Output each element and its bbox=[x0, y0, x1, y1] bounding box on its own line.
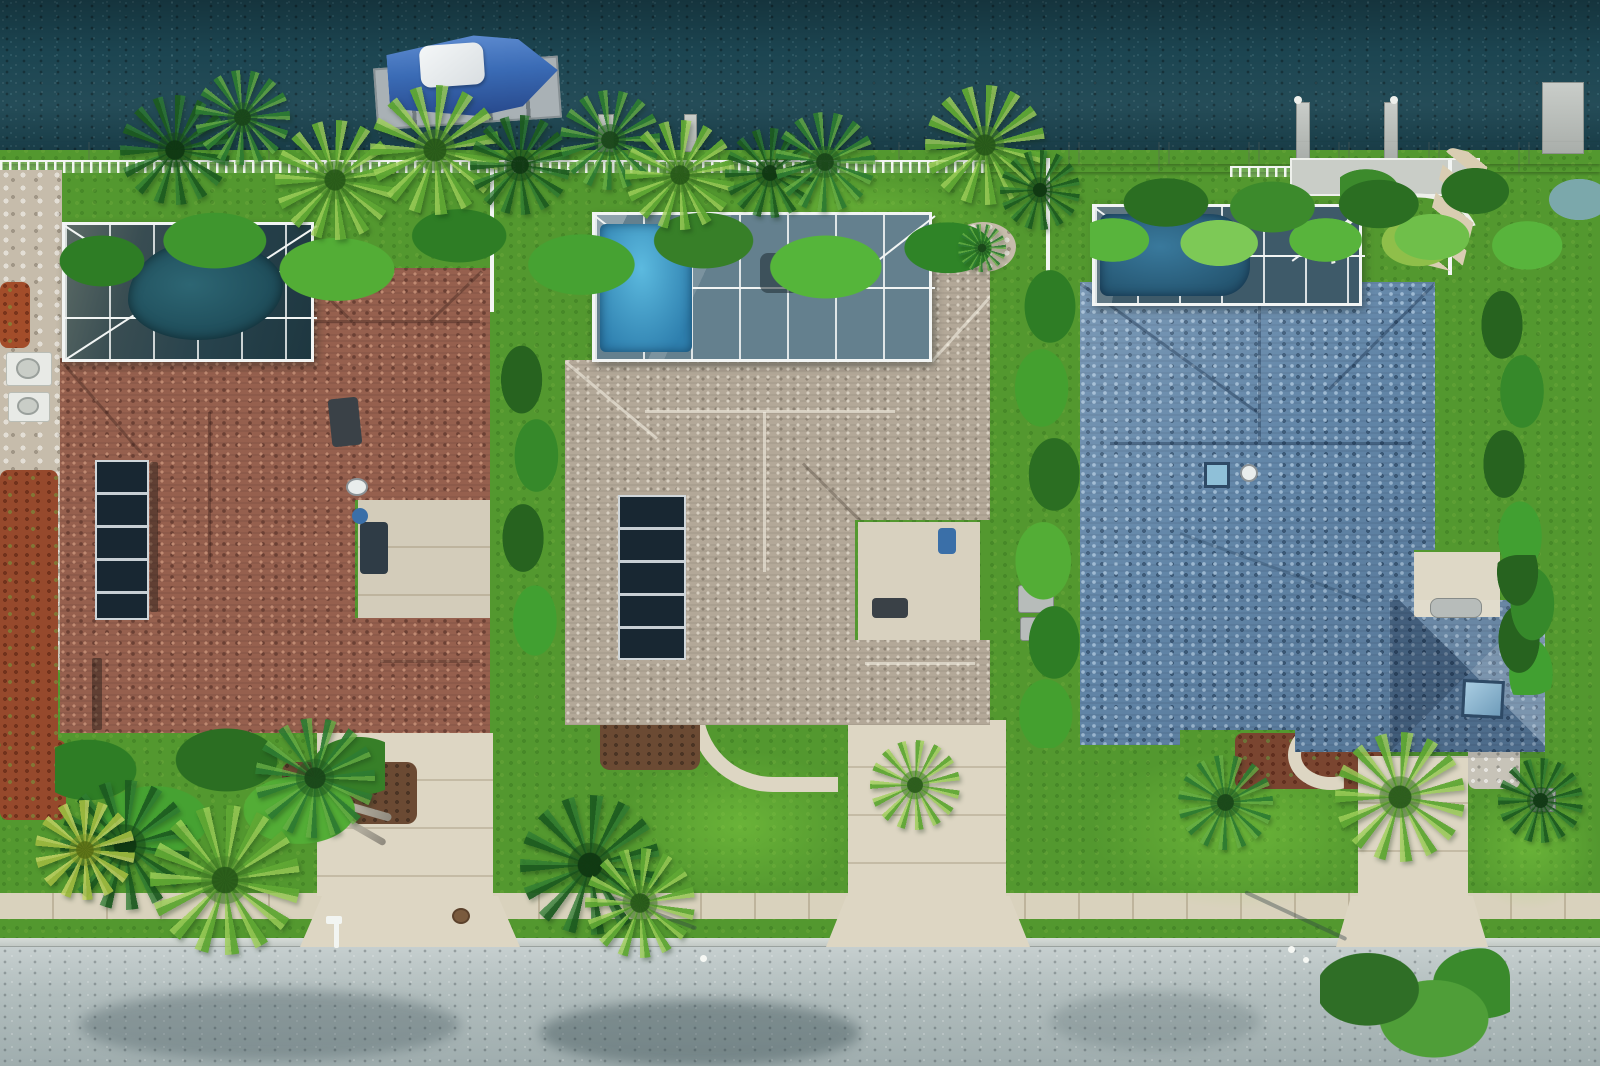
sprinkler-head bbox=[1288, 946, 1295, 953]
roof-skylight bbox=[1204, 462, 1230, 488]
parked-cart bbox=[1430, 598, 1482, 618]
grill bbox=[872, 598, 908, 618]
ac-fan bbox=[16, 358, 40, 379]
palm-tree bbox=[870, 740, 960, 830]
roof-vent-dome bbox=[1240, 464, 1258, 482]
roof-valley bbox=[1258, 282, 1261, 442]
driveway-middle-apron bbox=[826, 896, 1030, 947]
roof-hip bbox=[1179, 532, 1368, 603]
palm-by-driveway-right bbox=[1335, 732, 1465, 862]
shrub-screen-west bbox=[492, 340, 566, 670]
ac-fan bbox=[17, 397, 39, 415]
roof-ridge bbox=[645, 410, 895, 413]
roof-ridge bbox=[208, 412, 211, 562]
palm-tree bbox=[195, 70, 290, 165]
palm-shadow-on-road bbox=[540, 1000, 860, 1066]
ac-unit bbox=[6, 352, 52, 386]
roof-ridge bbox=[315, 320, 480, 323]
road-stain bbox=[80, 990, 460, 1060]
road-stain bbox=[1050, 992, 1260, 1050]
aerial-photo bbox=[0, 0, 1600, 1066]
ridge-vent bbox=[150, 462, 158, 612]
courtyard-middle bbox=[858, 522, 980, 640]
pool-equipment-blue bbox=[352, 508, 368, 524]
golf-cart bbox=[328, 397, 363, 448]
hedge-row-east bbox=[1462, 290, 1562, 580]
hedge-row-east-lower bbox=[1488, 555, 1562, 695]
palm-tree bbox=[775, 112, 875, 212]
palm-in-circle-bed bbox=[958, 224, 1006, 272]
street-sign-post bbox=[334, 922, 339, 948]
palm-tree bbox=[1178, 755, 1273, 850]
roof-hip bbox=[59, 359, 143, 455]
utility-cover bbox=[452, 908, 470, 924]
palm-tree bbox=[625, 120, 735, 230]
roof-ridge bbox=[1110, 442, 1410, 445]
palm-tree bbox=[1000, 150, 1080, 230]
dock-post bbox=[1294, 96, 1302, 104]
tree-canopy-over-road bbox=[1320, 948, 1510, 1066]
roof-ridge bbox=[865, 662, 975, 665]
roof-ridge bbox=[763, 412, 766, 572]
palm-over-sidewalk bbox=[585, 848, 695, 958]
trimmed-hedge-garden bbox=[1090, 150, 1470, 300]
roof-hip bbox=[564, 360, 658, 439]
ac-unit bbox=[8, 392, 50, 422]
pool-equipment bbox=[360, 522, 388, 574]
west-mulch-bed bbox=[0, 470, 58, 750]
boat-console-cover bbox=[419, 42, 486, 88]
satellite-dish bbox=[346, 478, 368, 496]
driveway-right-apron bbox=[1336, 896, 1488, 947]
solar-panel-array-left bbox=[95, 460, 149, 620]
street-sign bbox=[326, 916, 342, 924]
palm-tree bbox=[470, 115, 570, 215]
solar-panel-array-middle bbox=[618, 495, 686, 660]
palm-tree bbox=[1498, 758, 1583, 843]
palm-tree bbox=[255, 718, 375, 838]
sprinkler-head bbox=[1303, 957, 1309, 963]
road-reflector bbox=[700, 955, 707, 962]
dock-post bbox=[1390, 96, 1398, 104]
palm-tree bbox=[150, 805, 300, 955]
hedge-row-between-lots bbox=[1008, 268, 1092, 748]
recycle-bin bbox=[938, 528, 956, 554]
roof-ridge bbox=[380, 660, 480, 663]
red-flowering-bed bbox=[0, 282, 30, 348]
yucca-plant bbox=[35, 800, 135, 900]
